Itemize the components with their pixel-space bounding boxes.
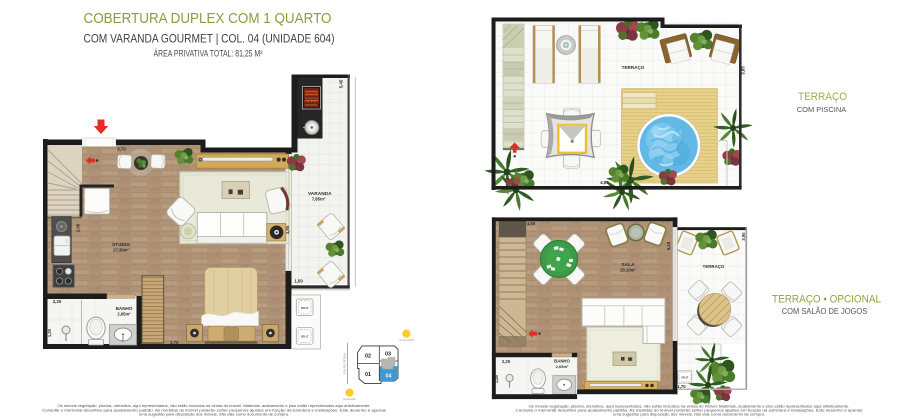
svg-text:1,20: 1,20 <box>47 328 52 337</box>
svg-text:sol da manhã: sol da manhã <box>399 339 414 342</box>
svg-text:2,65m²: 2,65m² <box>556 364 569 369</box>
svg-text:uma sugestão para disposição d: uma sugestão para disposição dos móveis,… <box>613 412 765 417</box>
svg-text:4,85: 4,85 <box>285 225 290 234</box>
svg-text:3,85: 3,85 <box>741 66 746 75</box>
svg-text:4,55: 4,55 <box>527 221 536 226</box>
svg-text:1,70: 1,70 <box>677 384 686 389</box>
svg-text:ÁREA PRIVATIVA TOTAL: 81,25 M: ÁREA PRIVATIVA TOTAL: 81,25 M² <box>154 48 263 58</box>
svg-text:02: 02 <box>365 354 371 360</box>
svg-text:27,30m²: 27,30m² <box>113 247 129 252</box>
svg-text:2,20: 2,20 <box>53 299 62 304</box>
svg-text:5,15: 5,15 <box>666 241 671 250</box>
svg-text:2,20: 2,20 <box>502 359 511 364</box>
svg-text:TERRAÇO • OPCIONAL: TERRAÇO • OPCIONAL <box>772 293 881 305</box>
svg-text:COM SALÃO DE JOGOS: COM SALÃO DE JOGOS <box>782 307 868 316</box>
svg-text:4,90: 4,90 <box>600 180 609 185</box>
svg-text:7,85m²: 7,85m² <box>312 197 326 202</box>
svg-text:20,10m²: 20,10m² <box>620 268 636 273</box>
svg-text:01: 01 <box>365 372 371 378</box>
svg-text:3,70: 3,70 <box>117 147 126 152</box>
svg-text:sol da tarde: sol da tarde <box>343 398 356 401</box>
svg-text:03: 03 <box>385 352 391 358</box>
svg-text:5,45: 5,45 <box>338 79 343 88</box>
svg-text:SPLIT: SPLIT <box>681 376 689 379</box>
svg-text:1,50: 1,50 <box>294 279 303 284</box>
svg-text:COBERTURA DUPLEX COM 1 QUARTO: COBERTURA DUPLEX COM 1 QUARTO <box>84 11 332 27</box>
svg-text:SPLIT: SPLIT <box>301 306 309 310</box>
svg-text:BANHO: BANHO <box>116 306 133 311</box>
svg-text:COM PISCINA: COM PISCINA <box>797 105 847 114</box>
svg-text:COM VARANDA GOURMET | COL. 04: COM VARANDA GOURMET | COL. 04 (UNIDADE 6… <box>84 32 335 46</box>
svg-text:3,75: 3,75 <box>170 340 179 345</box>
svg-text:TERRAÇO: TERRAÇO <box>622 65 645 70</box>
svg-text:2,00: 2,00 <box>75 223 80 232</box>
svg-text:3,90: 3,90 <box>741 232 746 241</box>
svg-text:TERRAÇO: TERRAÇO <box>703 264 725 269</box>
svg-text:SPLIT: SPLIT <box>301 335 309 339</box>
svg-text:2,65m²: 2,65m² <box>117 311 131 316</box>
svg-text:04: 04 <box>386 373 392 379</box>
svg-text:uma sugestão para disposição d: uma sugestão para disposição dos móveis,… <box>139 412 289 417</box>
svg-text:TERRAÇO: TERRAÇO <box>798 91 847 103</box>
svg-text:RUA PROJETADA: RUA PROJETADA <box>342 353 346 375</box>
